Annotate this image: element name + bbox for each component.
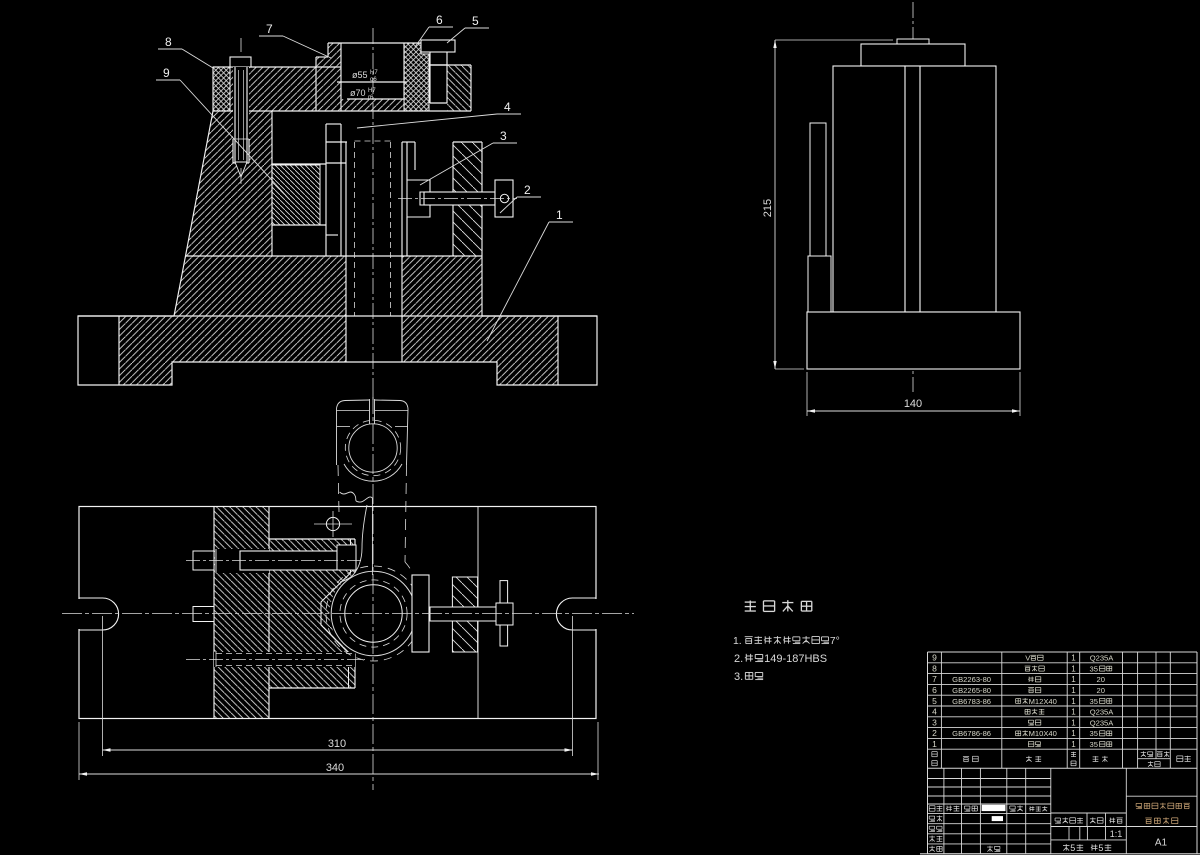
svg-text:1: 1 <box>1071 697 1076 706</box>
svg-text:1:1: 1:1 <box>1110 829 1123 839</box>
svg-text:GB2263-80: GB2263-80 <box>952 675 991 684</box>
svg-text:A1: A1 <box>1155 838 1168 849</box>
svg-text:1: 1 <box>1071 675 1076 684</box>
svg-text:2.: 2. <box>734 653 743 665</box>
svg-text:1: 1 <box>1071 729 1076 738</box>
svg-text:7: 7 <box>266 22 273 36</box>
svg-text:GB6783-86: GB6783-86 <box>952 697 991 706</box>
svg-text:2: 2 <box>524 183 531 197</box>
svg-text:7°: 7° <box>830 636 840 647</box>
svg-text:1: 1 <box>1071 718 1076 727</box>
svg-text:3.: 3. <box>734 671 743 683</box>
svg-text:ø55: ø55 <box>352 70 368 80</box>
svg-text:3: 3 <box>500 129 507 143</box>
svg-text:149-187HBS: 149-187HBS <box>764 653 827 665</box>
svg-text:H7: H7 <box>370 70 378 76</box>
svg-text:20: 20 <box>1097 686 1105 695</box>
svg-text:9: 9 <box>163 66 170 80</box>
svg-text:M12X40: M12X40 <box>1029 697 1057 706</box>
svg-text:Q235A: Q235A <box>1090 708 1115 717</box>
svg-text:1: 1 <box>1071 686 1076 695</box>
svg-text:1: 1 <box>1071 654 1076 663</box>
svg-text:1: 1 <box>1071 708 1076 717</box>
svg-text:H7: H7 <box>368 88 376 94</box>
svg-text:6: 6 <box>932 685 937 695</box>
svg-text:g6: g6 <box>370 77 377 83</box>
svg-text:3: 3 <box>932 717 937 727</box>
svg-text:1: 1 <box>1071 664 1076 673</box>
svg-text:20: 20 <box>1097 675 1105 684</box>
svg-text:6: 6 <box>436 13 443 27</box>
svg-text:GB2265-80: GB2265-80 <box>952 686 991 695</box>
svg-text:9: 9 <box>932 653 937 663</box>
svg-text:4: 4 <box>932 707 937 717</box>
svg-text:Q235A: Q235A <box>1090 654 1115 663</box>
svg-text:2: 2 <box>932 728 937 738</box>
svg-text:ø70: ø70 <box>350 88 366 98</box>
svg-text:215: 215 <box>762 199 774 217</box>
svg-text:35: 35 <box>1090 697 1098 706</box>
svg-text:340: 340 <box>326 762 344 774</box>
svg-text:GB6786-86: GB6786-86 <box>952 729 991 738</box>
svg-text:1: 1 <box>932 739 937 749</box>
svg-text:7: 7 <box>932 674 937 684</box>
svg-text:5: 5 <box>472 14 479 28</box>
svg-text:5: 5 <box>932 696 937 706</box>
svg-text:8: 8 <box>932 663 937 673</box>
svg-text:140: 140 <box>904 398 922 410</box>
svg-text:Q235A: Q235A <box>1090 718 1115 727</box>
svg-text:310: 310 <box>328 738 346 750</box>
svg-text:35: 35 <box>1090 729 1098 738</box>
svg-text:M10X40: M10X40 <box>1029 729 1057 738</box>
svg-text:5: 5 <box>1098 843 1103 853</box>
svg-text:4: 4 <box>504 100 511 114</box>
svg-text:8: 8 <box>165 35 172 49</box>
svg-text:1.: 1. <box>733 636 742 647</box>
svg-text:35: 35 <box>1090 740 1098 749</box>
svg-text:35: 35 <box>1090 664 1098 673</box>
svg-text:1: 1 <box>1071 740 1076 749</box>
svg-text:1: 1 <box>556 208 563 222</box>
svg-text:5: 5 <box>1070 843 1075 853</box>
